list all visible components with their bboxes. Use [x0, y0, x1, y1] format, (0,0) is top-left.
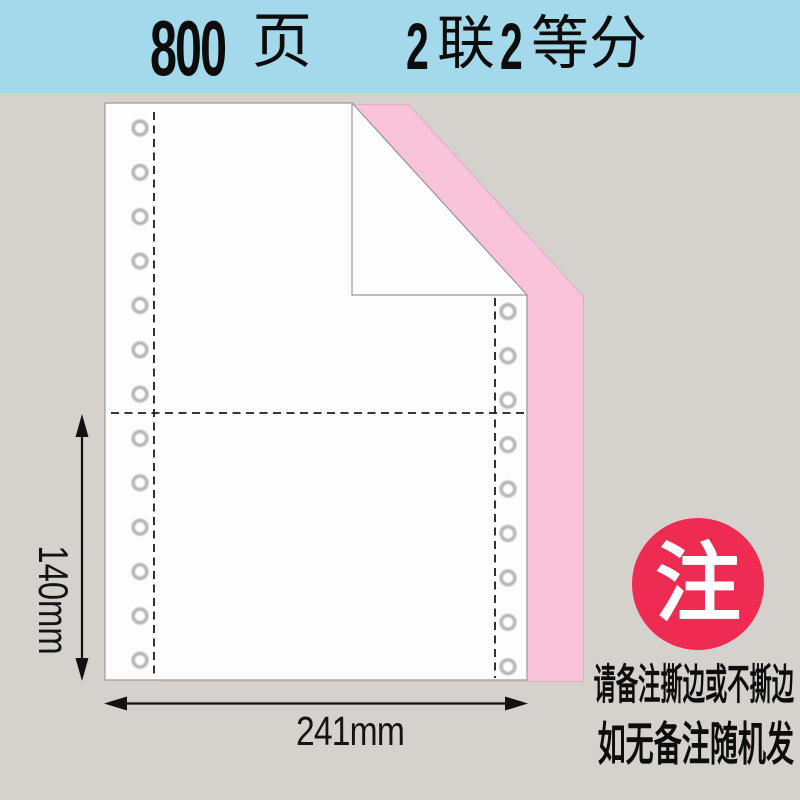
pin-feed-hole	[133, 343, 147, 357]
pin-feed-hole	[501, 616, 515, 630]
pin-feed-hole	[133, 254, 147, 268]
remark-instruction-line1: 请备注撕边或不撕边	[594, 664, 794, 706]
pin-feed-hole	[133, 166, 147, 180]
width-dimension-label: 241mm	[260, 711, 440, 752]
height-dimension-label: 140mm	[30, 514, 74, 686]
pin-feed-hole	[133, 121, 147, 135]
pin-feed-hole	[501, 527, 515, 541]
pin-feed-hole	[501, 482, 515, 496]
folded-corner-flap	[352, 103, 527, 295]
note-badge: 注	[632, 518, 764, 650]
pin-feed-hole	[133, 653, 147, 667]
pin-feed-hole	[133, 476, 147, 490]
height-dimension-arrow	[76, 414, 89, 681]
pin-feed-hole	[501, 438, 515, 452]
pin-feed-hole	[501, 394, 515, 408]
pin-feed-holes-right	[501, 305, 515, 674]
remark-instruction-line2: 如无备注随机发	[598, 721, 794, 767]
note-badge-character: 注	[655, 541, 741, 627]
pin-feed-hole	[133, 565, 147, 579]
pin-feed-hole	[133, 520, 147, 534]
pin-feed-hole	[133, 299, 147, 313]
pin-feed-hole	[501, 660, 515, 674]
pin-feed-hole	[133, 609, 147, 623]
pin-feed-hole	[501, 349, 515, 363]
pin-feed-hole	[133, 432, 147, 446]
product-image: 800 页 2 联 2 等分	[0, 0, 800, 800]
pin-feed-hole	[133, 210, 147, 224]
pin-feed-hole	[501, 571, 515, 585]
pin-feed-hole	[501, 305, 515, 319]
pin-feed-hole	[133, 387, 147, 401]
